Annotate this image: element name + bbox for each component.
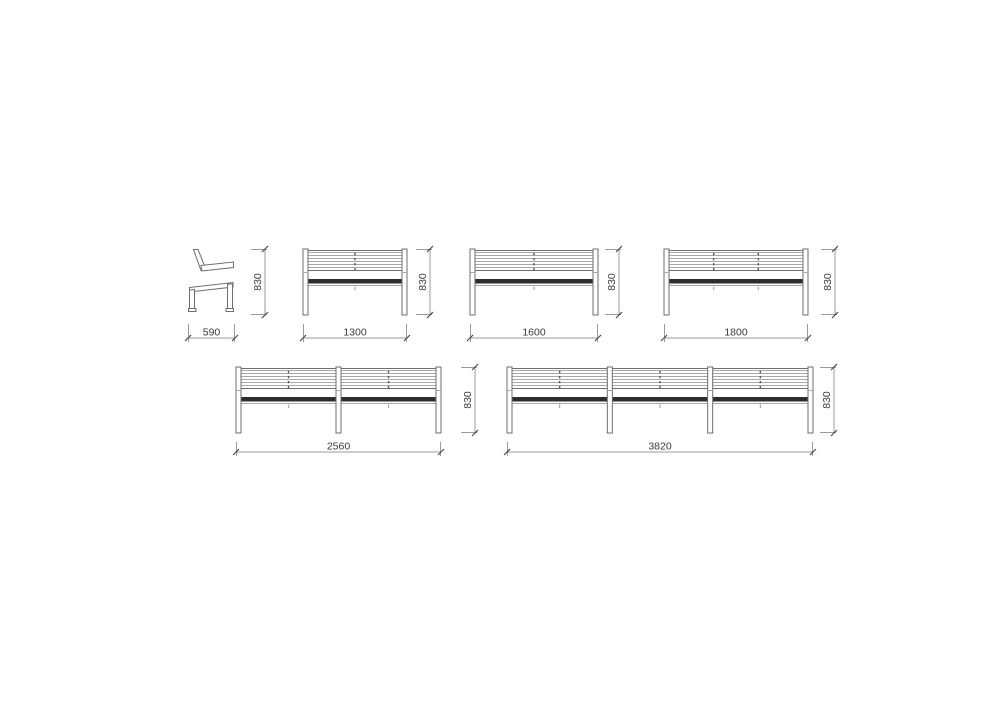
bench-post <box>803 249 808 315</box>
seat-rail <box>475 279 593 284</box>
bench-technical-drawing: 5908301300830160083018008302560830382083… <box>0 0 1000 707</box>
drawing-shape <box>228 284 233 309</box>
drawing-shape <box>190 283 234 293</box>
bench-post <box>507 367 512 433</box>
bench-front-1800: 1800830 <box>661 246 838 342</box>
height-dimension-label: 830 <box>462 391 474 409</box>
bench-post <box>470 249 475 315</box>
bench-post <box>402 249 407 315</box>
width-dimension-label: 2560 <box>327 441 351 453</box>
bench-post <box>708 367 713 433</box>
seat-rail <box>308 279 402 284</box>
bench-front-3820: 3820830 <box>504 364 837 456</box>
height-dimension-label: 830 <box>822 273 834 291</box>
height-dimension-label: 830 <box>606 273 618 291</box>
width-dimension-label: 3820 <box>648 441 672 453</box>
bench-post <box>808 367 813 433</box>
height-dimension-label: 830 <box>821 391 833 409</box>
bench-post <box>436 367 441 433</box>
seat-rail <box>669 279 803 284</box>
drawing-shape <box>189 309 197 312</box>
bench-post <box>664 249 669 315</box>
drawing-shape <box>201 262 234 271</box>
width-dimension-label: 1300 <box>343 327 367 339</box>
bench-post <box>336 367 341 433</box>
bench-post <box>303 249 308 315</box>
bench-front-2560: 2560830 <box>233 364 478 456</box>
drawing-shape <box>226 309 234 312</box>
width-dimension-label: 590 <box>203 327 221 339</box>
height-dimension-label: 830 <box>252 273 264 291</box>
bench-front-1300: 1300830 <box>300 246 433 342</box>
height-dimension-label: 830 <box>417 273 429 291</box>
seat-rail <box>512 397 808 402</box>
bench-front-1600: 1600830 <box>467 246 622 342</box>
drawing-shape <box>190 290 195 309</box>
bench-post <box>593 249 598 315</box>
bench-side-view: 590830 <box>185 246 268 342</box>
width-dimension-label: 1800 <box>724 327 748 339</box>
drawing-page: 5908301300830160083018008302560830382083… <box>0 0 1000 707</box>
bench-post <box>607 367 612 433</box>
width-dimension-label: 1600 <box>522 327 546 339</box>
bench-post <box>236 367 241 433</box>
